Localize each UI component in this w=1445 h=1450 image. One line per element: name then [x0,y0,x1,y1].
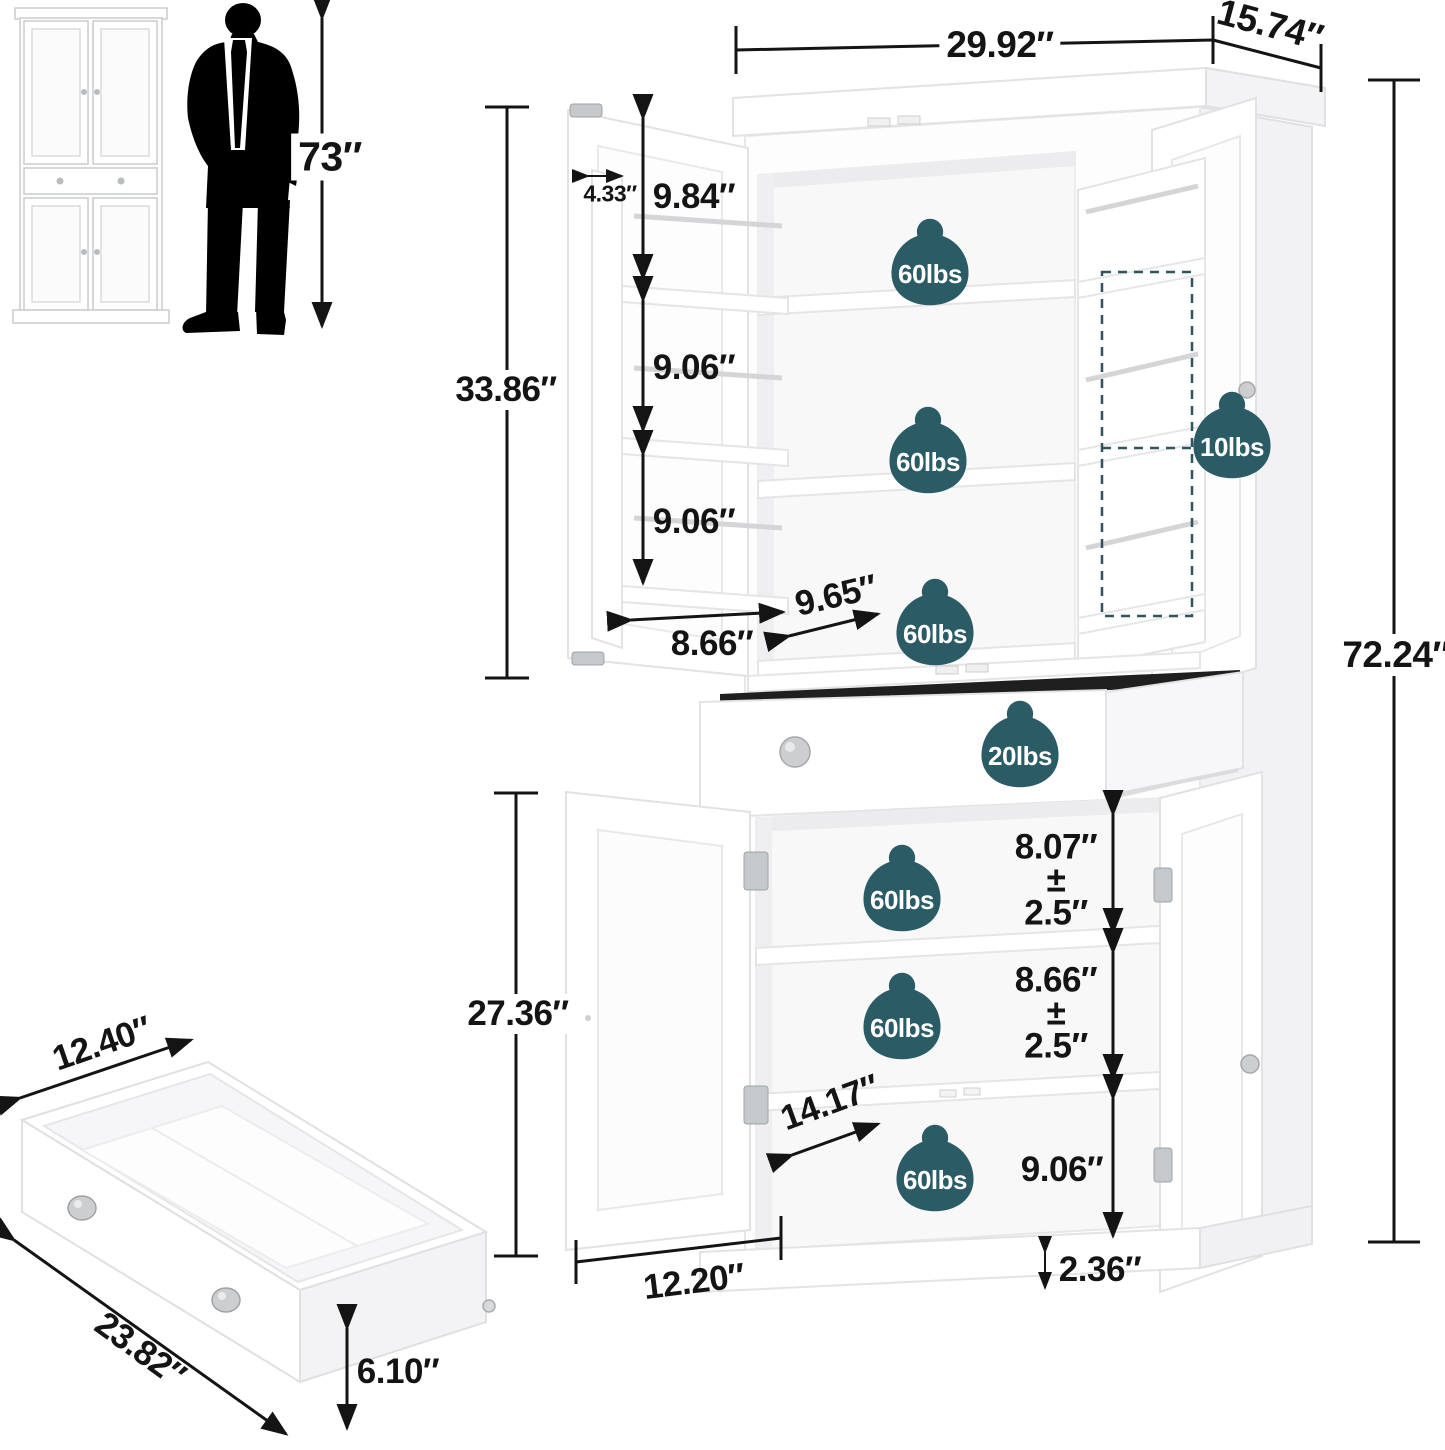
cabinet-clip-detail [868,118,890,126]
capacity-value: 60lbs [883,259,977,290]
man-silhouette [183,3,300,335]
dim-value: 8.07″ [1015,832,1097,865]
dim-label-lower-section-height: 27.36″ [460,994,575,1034]
closed-cabinet-thumbnail [13,8,169,323]
capacity-badge-door-rack: 10lbs [1185,389,1279,481]
capacity-badge-drawer: 20lbs [973,698,1067,790]
door-hinge [1154,1148,1172,1182]
capacity-badge-upper-shelf-2: 60lbs [881,404,975,496]
capacity-value: 60lbs [855,1013,949,1044]
dim-label-overall-width: 29.92″ [939,24,1060,66]
dim-label-upper-section-height: 33.86″ [448,370,563,410]
door-hinge [744,852,768,890]
dim-plus-minus: ± [1015,865,1097,898]
dim-label-drawer-height: 6.10″ [357,1352,439,1392]
capacity-value: 60lbs [881,447,975,478]
cabinet-clip-detail [898,116,920,124]
capacity-badge-lower-shelf-2: 60lbs [855,970,949,1062]
dim-label-man-height: 73″ [291,134,369,181]
dim-label-lower-shelf-1: 8.07″ ± 2.5″ [1015,832,1097,931]
capacity-value: 60lbs [855,885,949,916]
capacity-value: 60lbs [888,1165,982,1196]
dim-label-lower-shelf-2: 8.66″ ± 2.5″ [1015,965,1097,1064]
dim-label-upper-door-width: 8.66″ [671,624,753,664]
dim-label-door-shelf-depth: 4.33″ [583,181,636,208]
capacity-badge-lower-shelf-1: 60lbs [855,842,949,934]
dim-plus-minus: ± [1015,998,1097,1031]
capacity-value: 20lbs [973,741,1067,772]
drawer-knob [68,1196,96,1220]
dim-label-upper-door-shelf-1: 9.84″ [653,177,735,217]
rack-side-wall [592,170,622,648]
dim-label-lower-shelf-3: 9.06″ [1021,1150,1103,1190]
capacity-badge-lower-shelf-3: 60lbs [888,1122,982,1214]
door-hinge [744,1086,768,1124]
dim-adjust-value: 2.5″ [1015,897,1097,930]
capacity-badge-upper-shelf-3: 60lbs [888,576,982,668]
lower-right-door [1154,772,1262,1292]
drawer-knob [780,737,810,767]
capacity-value: 60lbs [888,619,982,650]
dim-value: 8.66″ [1015,965,1097,998]
dim-label-overall-height: 72.24″ [1335,634,1445,676]
product-dimension-diagram: 29.92″ 15.74″ 72.24″ 73″ 33.86″ 27.36″ 4… [0,0,1445,1450]
dim-adjust-value: 2.5″ [1015,1030,1097,1063]
door-hinge [572,652,604,665]
dim-label-upper-door-shelf-2: 9.06″ [653,348,735,388]
door-knob [1241,1055,1259,1073]
drawer-glide [483,1300,495,1312]
capacity-badge-upper-shelf-1: 60lbs [883,216,977,308]
door-hinge [570,104,602,117]
dim-label-upper-door-shelf-3: 9.06″ [653,502,735,542]
dim-label-base-height: 2.36″ [1059,1250,1141,1290]
diagram-artwork [0,0,1445,1450]
capacity-value: 10lbs [1185,432,1279,463]
lower-left-door [566,792,768,1250]
door-hinge [1154,868,1172,902]
drawer-knob [212,1288,240,1312]
